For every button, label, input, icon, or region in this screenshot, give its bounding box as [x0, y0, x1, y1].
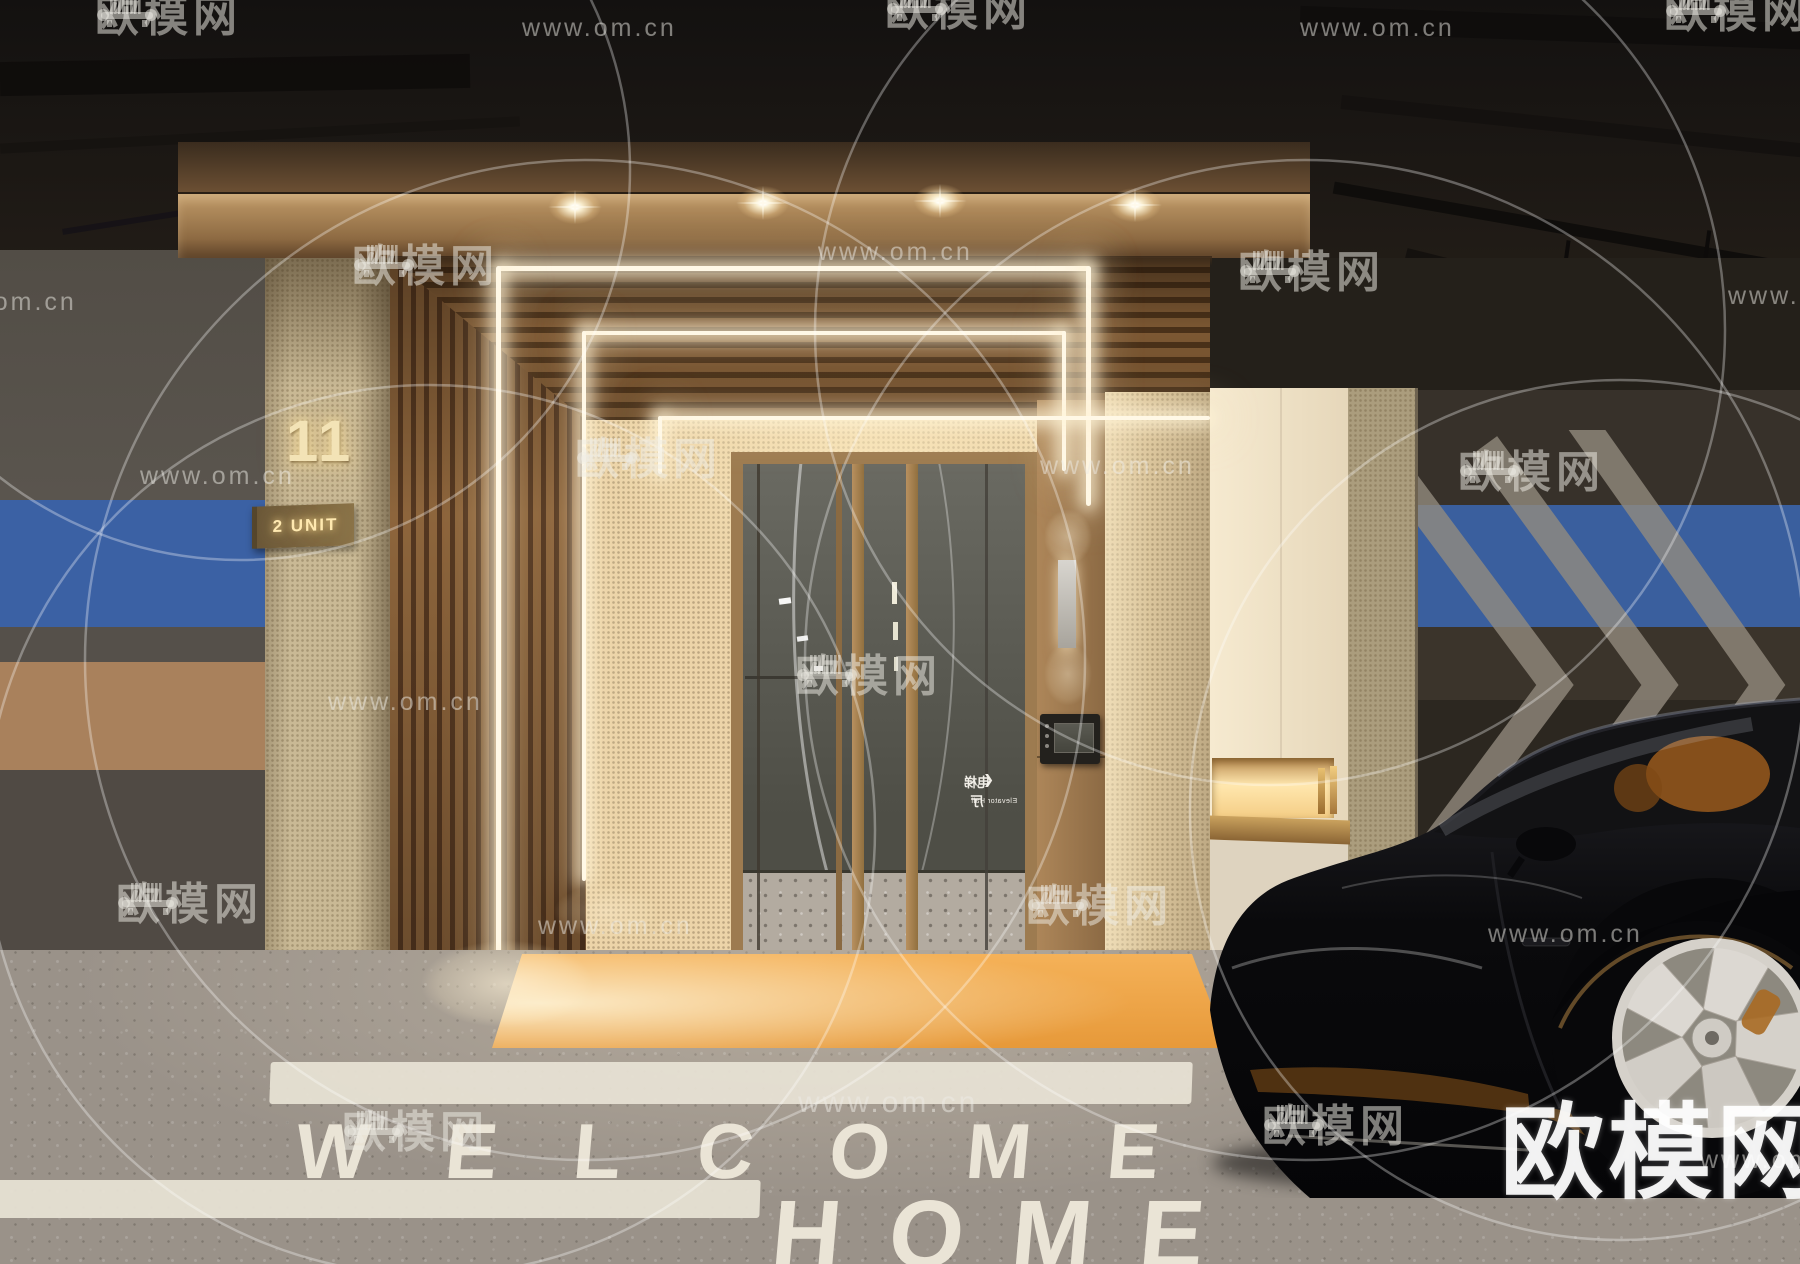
corner-site-logo: 欧模网: [1500, 1068, 1800, 1219]
scene-garage-entrance: ❮ 电梯厅 Elevator Hall 11: [0, 0, 1800, 1264]
